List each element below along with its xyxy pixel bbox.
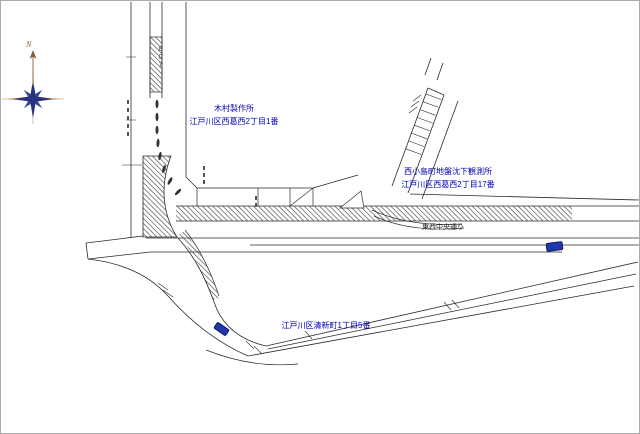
landmark-kimura-address: 江戸川区西葛西2丁目1番 <box>186 116 282 129</box>
landmark-observatory-address: 江戸川区西葛西2丁目17番 <box>400 179 496 192</box>
landmark-label-observatory: 西小島町地盤沈下観測所 江戸川区西葛西2丁目17番 <box>400 166 496 191</box>
southwest-curve-road <box>88 238 638 365</box>
compass-rose <box>2 50 64 124</box>
landmark-label-kimura: 木村製作所 江戸川区西葛西2丁目1番 <box>186 103 282 128</box>
junction-hatched-wedge <box>143 156 219 299</box>
route-number-vertical-label: 807 <box>157 46 164 70</box>
landmark-seishincho-address: 江戸川区清新町1丁目5番 <box>276 320 376 333</box>
landmark-observatory-name: 西小島町地盤沈下観測所 <box>400 166 496 179</box>
road-name-label: 東西中央通り <box>422 224 464 232</box>
road-linework <box>0 0 640 434</box>
road-register-map-canvas[interactable]: N 807 木村製作所 江戸川区西葛西2丁目1番 西小島町地盤沈下観測所 江戸川… <box>0 0 640 434</box>
compass-north-label: N <box>26 40 31 49</box>
micro-text-marks-center <box>203 166 257 207</box>
micro-text-marks-left <box>127 100 129 136</box>
landmark-label-seishincho: 江戸川区清新町1丁目5番 <box>276 320 376 333</box>
landmark-kimura-name: 木村製作所 <box>186 103 282 116</box>
